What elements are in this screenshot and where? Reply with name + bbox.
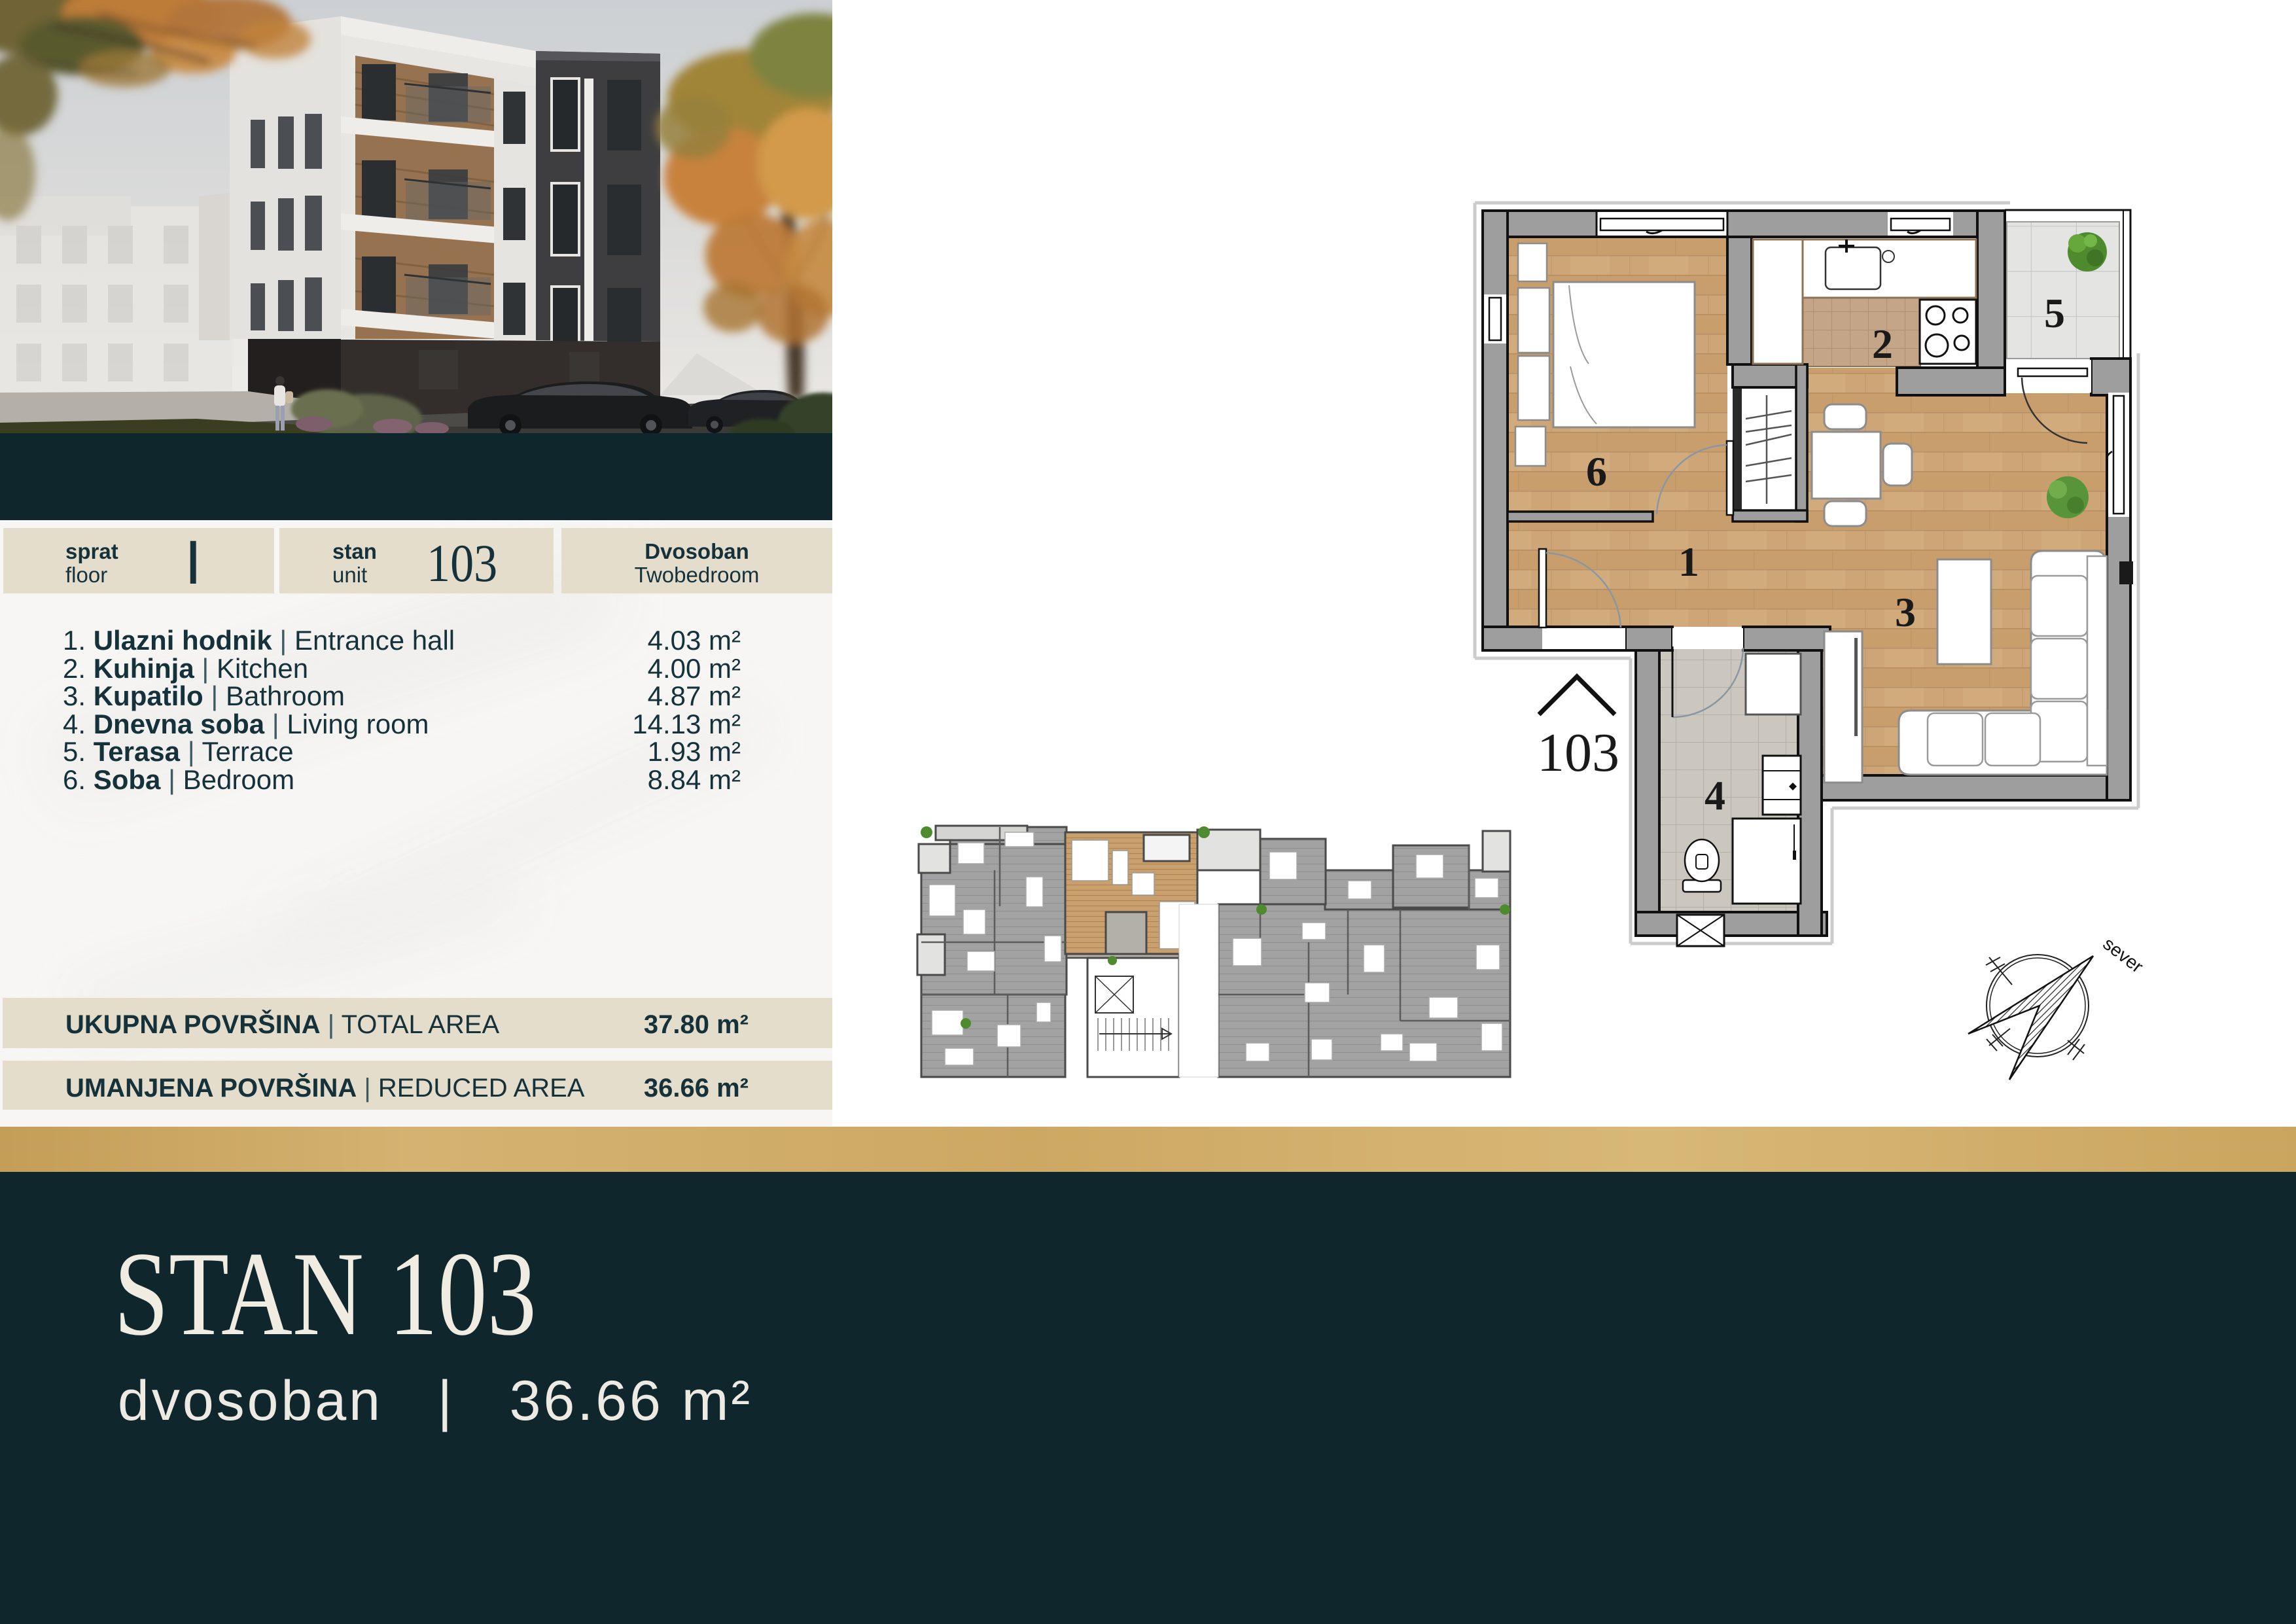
svg-text:5: 5 <box>2044 290 2065 336</box>
svg-text:3: 3 <box>1895 589 1916 635</box>
svg-text:1: 1 <box>1678 538 1699 585</box>
svg-text:4: 4 <box>1704 772 1725 819</box>
svg-text:sever: sever <box>2099 933 2147 977</box>
svg-text:2: 2 <box>1872 321 1893 367</box>
svg-text:6: 6 <box>1586 448 1607 495</box>
svg-text:103: 103 <box>1537 722 1619 783</box>
